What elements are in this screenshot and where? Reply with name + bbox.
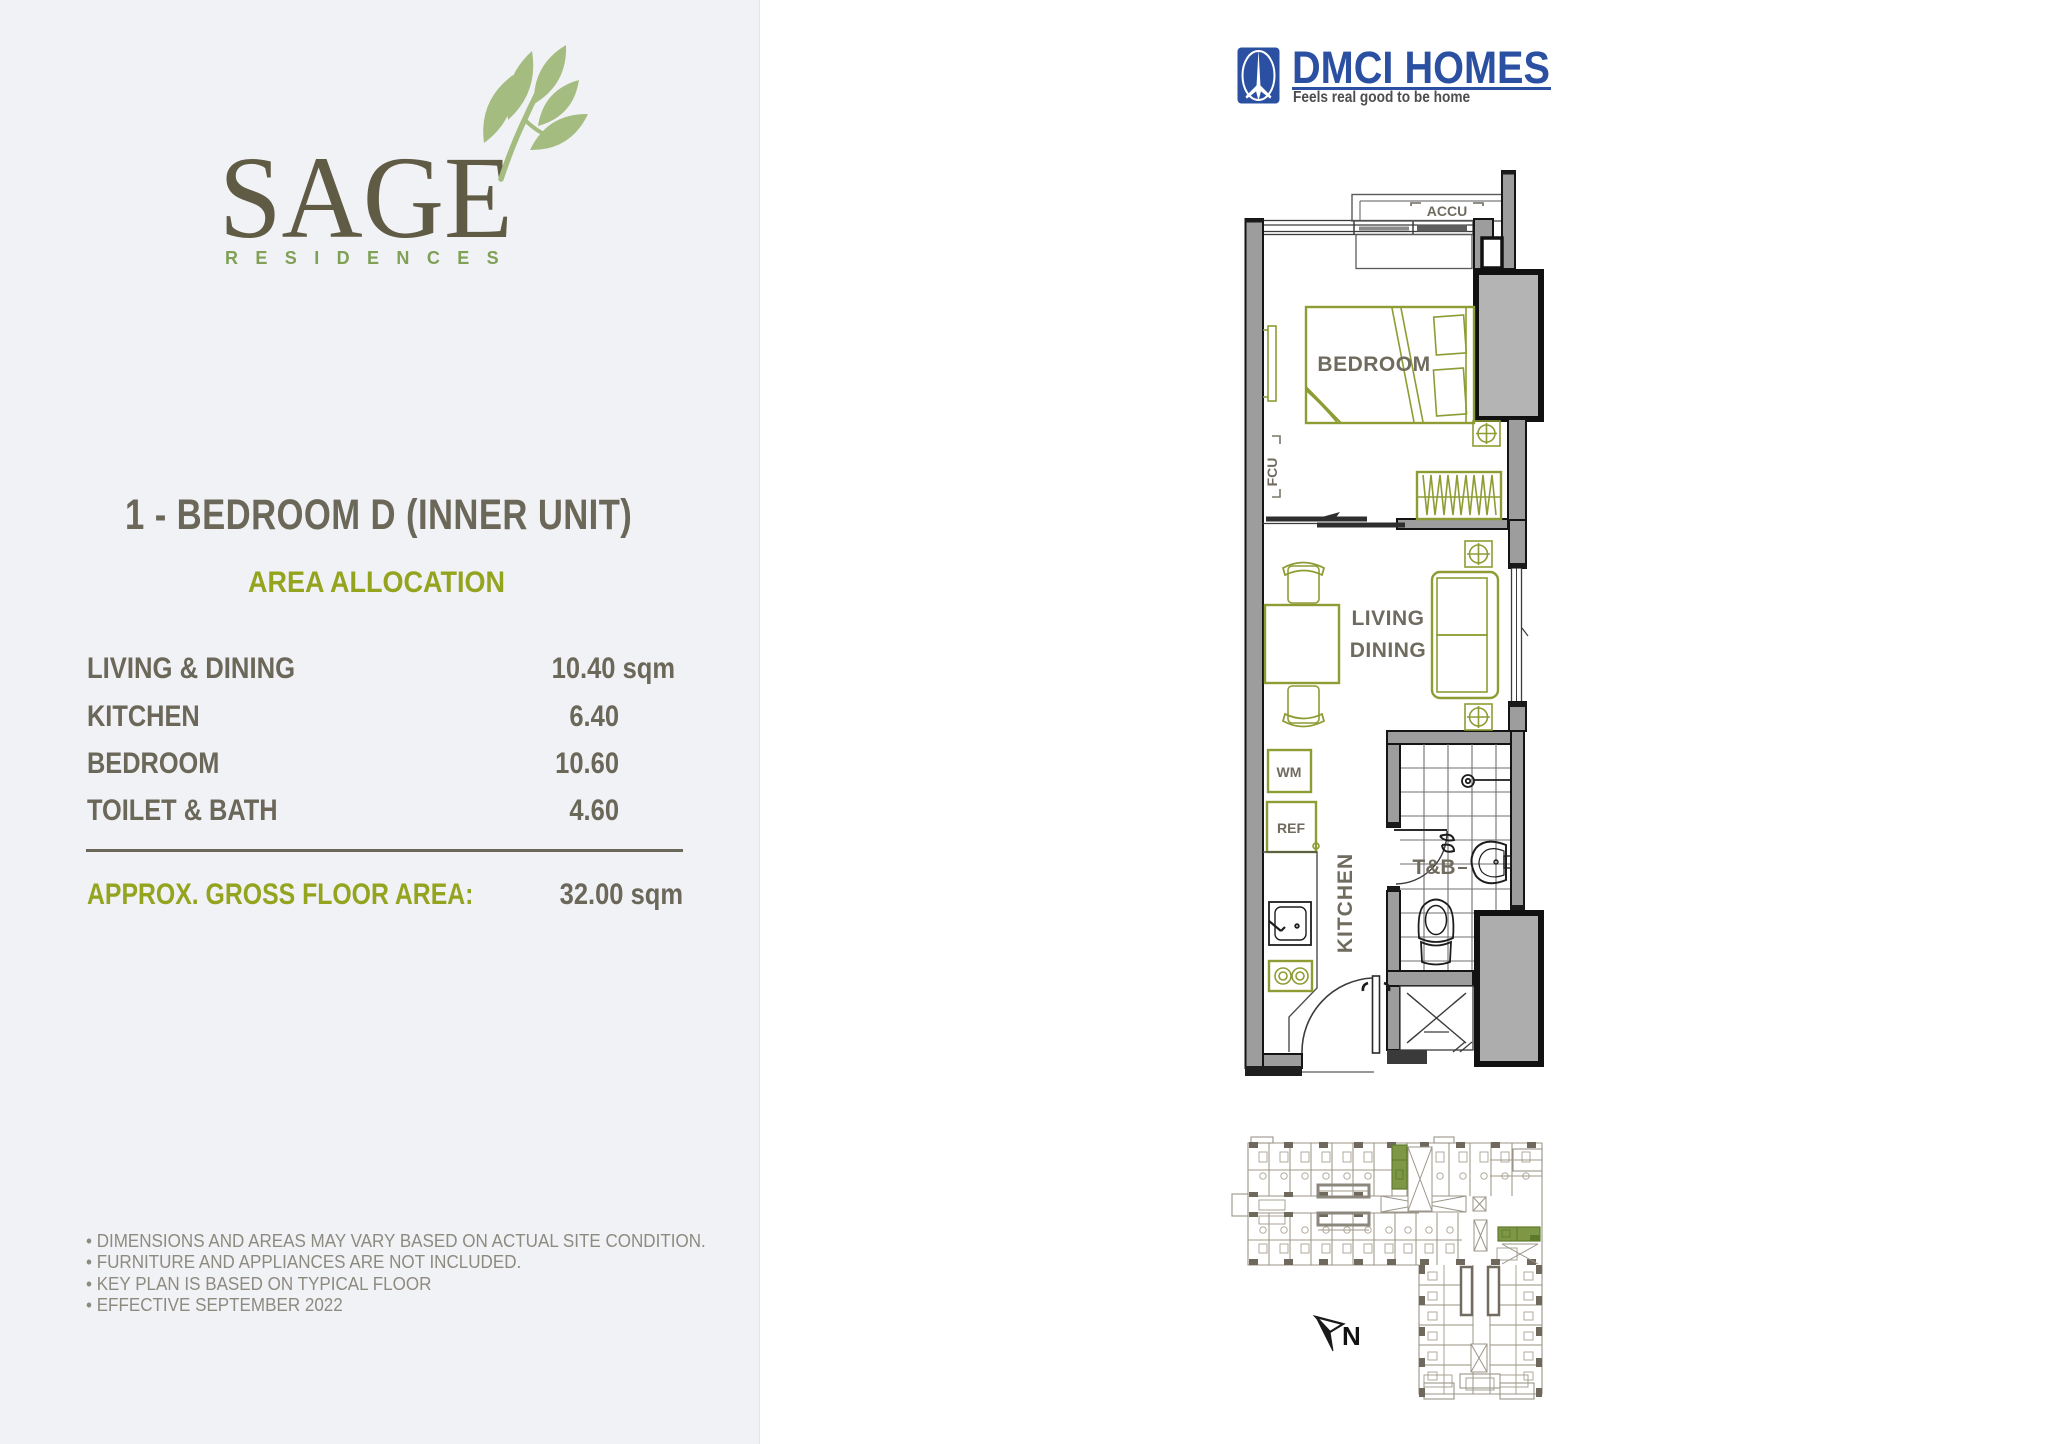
svg-text:WM: WM (1277, 764, 1302, 780)
svg-text:LIVING: LIVING (1351, 607, 1424, 630)
svg-text:KITCHEN: KITCHEN (1334, 853, 1357, 953)
svg-text:BEDROOM: BEDROOM (1317, 353, 1430, 376)
svg-text:N: N (1342, 1321, 1361, 1351)
svg-text:DINING: DINING (1350, 639, 1427, 662)
svg-text:ACCU: ACCU (1427, 203, 1467, 219)
svg-text:REF: REF (1277, 820, 1305, 836)
svg-text:FCU: FCU (1264, 458, 1280, 487)
svg-text:T&B: T&B (1412, 856, 1455, 879)
